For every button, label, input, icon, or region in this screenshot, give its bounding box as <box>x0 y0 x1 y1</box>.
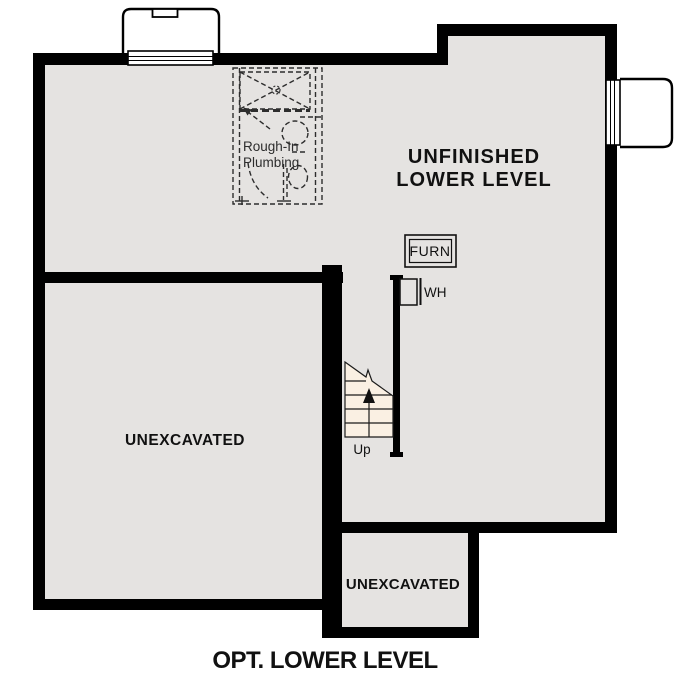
label-unfinished-line2: LOWER LEVEL <box>396 169 551 191</box>
wall-stair-thin-cap-bottom <box>390 452 403 457</box>
wall-stair-thin <box>393 275 400 457</box>
water-heater-rect <box>400 279 417 305</box>
window-well-right <box>606 79 672 147</box>
window-right <box>606 80 620 145</box>
wall-interior-vertical <box>322 265 342 638</box>
window-well-top-ladder-rung <box>153 9 178 17</box>
window-well-top <box>123 9 219 65</box>
window-well-right-outline <box>620 79 672 147</box>
page-title: OPT. LOWER LEVEL <box>212 647 437 674</box>
wall-left <box>33 53 45 610</box>
label-plumbing-line2: Plumbing <box>243 155 299 170</box>
wall-bottom-room-bottom <box>322 627 479 638</box>
label-water-heater: WH <box>424 285 447 300</box>
label-unfinished-line1: UNFINISHED <box>408 146 540 168</box>
wall-top-left <box>33 53 448 65</box>
label-furnace: FURN <box>410 243 451 259</box>
wall-interior-horizontal <box>33 272 343 283</box>
label-unexcavated-bottom: UNEXCAVATED <box>346 576 460 593</box>
wall-bottom-room-right <box>468 533 479 638</box>
label-stairs-up: Up <box>353 442 370 457</box>
label-plumbing-line1: Rough-In <box>243 139 299 154</box>
wall-left-room-bottom <box>33 599 341 610</box>
wall-main-bottom <box>323 522 617 533</box>
label-unexcavated-left: UNEXCAVATED <box>125 432 245 449</box>
floor-plan: UNFINISHED LOWER LEVEL UNEXCAVATED UNEXC… <box>0 0 687 687</box>
wall-top-right <box>437 24 617 36</box>
window-top <box>128 51 213 65</box>
water-heater-box <box>400 278 421 305</box>
